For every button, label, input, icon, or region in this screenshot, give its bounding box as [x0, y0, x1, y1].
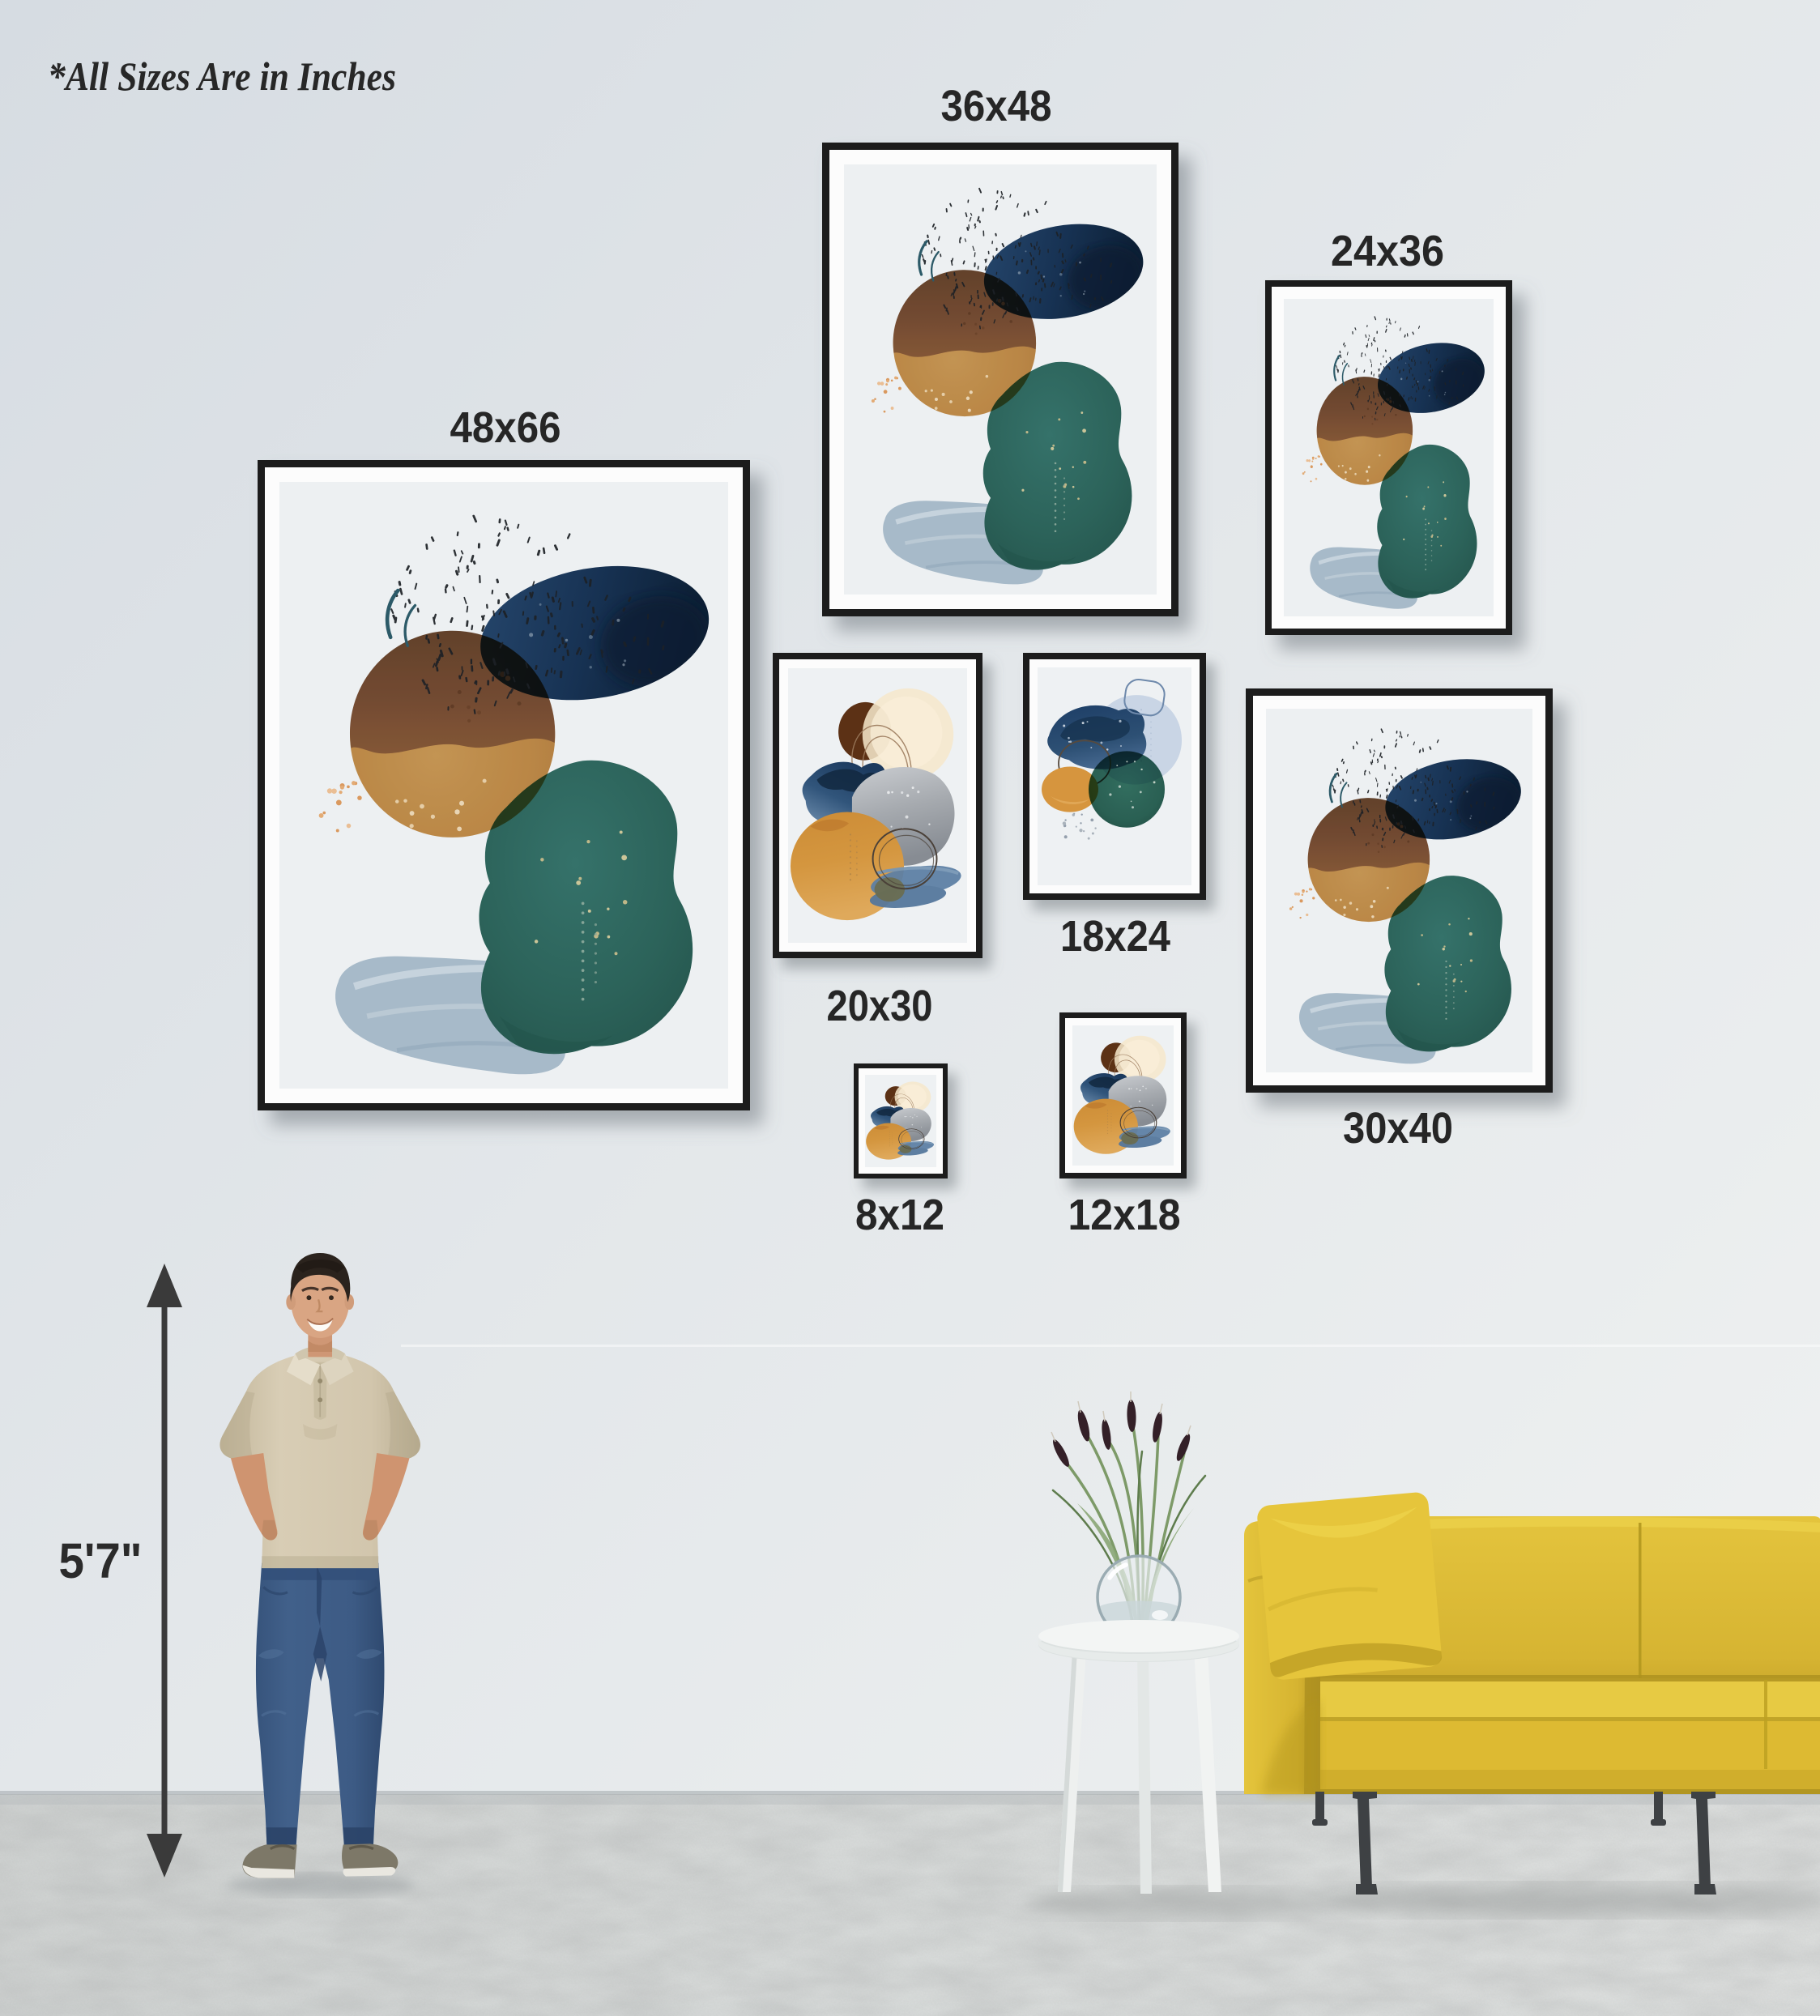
svg-text:36x48: 36x48 — [941, 82, 1052, 130]
svg-text:8x12: 8x12 — [855, 1191, 944, 1239]
svg-text:18x24: 18x24 — [1060, 912, 1170, 961]
svg-text:30x40: 30x40 — [1343, 1104, 1453, 1153]
svg-text:48x66: 48x66 — [450, 403, 561, 452]
svg-text:24x36: 24x36 — [1331, 227, 1444, 275]
svg-text:*All Sizes Are in Inches: *All Sizes Are in Inches — [48, 53, 396, 99]
svg-text:12x18: 12x18 — [1068, 1191, 1181, 1239]
svg-text:5'7": 5'7" — [59, 1533, 143, 1588]
svg-text:20x30: 20x30 — [827, 982, 933, 1030]
